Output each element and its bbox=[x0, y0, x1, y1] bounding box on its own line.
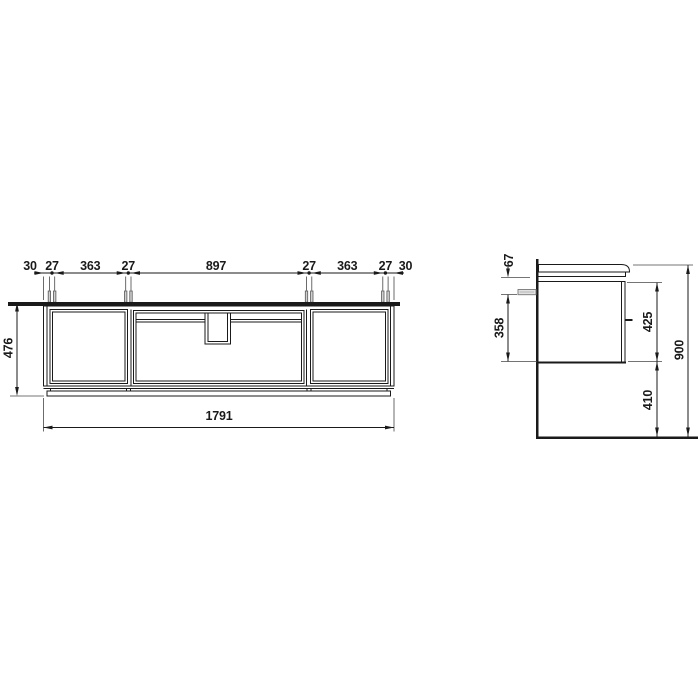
anchor-mark bbox=[311, 291, 313, 302]
front-view: 30 27 363 27 897 27 363 27 30 bbox=[2, 259, 413, 432]
dim-label-897: 897 bbox=[206, 259, 227, 273]
anchor-mark bbox=[382, 291, 384, 302]
side-dimension-358: 358 bbox=[493, 295, 538, 362]
front-top-dimension-chain: 30 27 363 27 897 27 363 27 30 bbox=[23, 259, 412, 300]
dim-label-476: 476 bbox=[2, 338, 16, 359]
dim-label-425: 425 bbox=[641, 312, 655, 333]
dim-label-363-left: 363 bbox=[80, 259, 101, 273]
front-width-dimension: 1791 bbox=[44, 398, 395, 432]
left-door-inner bbox=[53, 312, 126, 381]
dim-label-30-right: 30 bbox=[399, 259, 413, 273]
dim-label-363-right: 363 bbox=[337, 259, 358, 273]
side-dimension-410: 410 bbox=[641, 362, 659, 437]
dim-label-67: 67 bbox=[502, 254, 516, 268]
dim-67-arrowhead bbox=[506, 269, 510, 278]
bottom-rail bbox=[47, 391, 391, 396]
anchor-mark bbox=[54, 291, 56, 302]
side-cabinet-body bbox=[537, 282, 633, 363]
dim-label-1791: 1791 bbox=[205, 409, 232, 423]
center-drawer bbox=[134, 311, 305, 384]
side-floor-line bbox=[536, 437, 698, 440]
dim-label-410: 410 bbox=[641, 390, 655, 411]
side-wall-line bbox=[536, 259, 539, 438]
dim-label-358: 358 bbox=[493, 318, 507, 339]
chain-extension-lines bbox=[44, 277, 395, 301]
right-door bbox=[311, 310, 389, 384]
front-cabinet-body bbox=[44, 306, 395, 396]
dim-label-27-b: 27 bbox=[122, 259, 136, 273]
side-fixing-anchor bbox=[518, 290, 536, 295]
technical-drawing-canvas: 30 27 363 27 897 27 363 27 30 bbox=[0, 0, 700, 700]
side-view: 67 358 425 410 900 bbox=[493, 254, 699, 439]
side-countertop-profile bbox=[539, 265, 630, 277]
dim-label-27-d: 27 bbox=[379, 259, 393, 273]
left-door bbox=[50, 310, 128, 384]
front-wall-anchor-marks bbox=[48, 291, 389, 302]
dim-label-900: 900 bbox=[673, 340, 687, 361]
anchor-mark bbox=[305, 291, 307, 302]
front-countertop bbox=[8, 302, 400, 306]
dim-label-27-c: 27 bbox=[302, 259, 316, 273]
anchor-mark bbox=[125, 291, 127, 302]
anchor-mark bbox=[387, 291, 389, 302]
cabinet-bottom-rail bbox=[44, 389, 395, 397]
side-dimension-67: 67 bbox=[501, 254, 530, 278]
anchor-mark bbox=[48, 291, 50, 302]
vanity-dimension-drawing: 30 27 363 27 897 27 363 27 30 bbox=[0, 0, 700, 700]
side-dimension-425: 425 bbox=[627, 283, 662, 362]
anchor-mark bbox=[130, 291, 132, 302]
countertop-lip bbox=[539, 272, 626, 277]
right-door-inner bbox=[313, 312, 386, 381]
dim-label-30-left: 30 bbox=[23, 259, 37, 273]
dim-label-27-a: 27 bbox=[45, 259, 59, 273]
countertop-slab bbox=[539, 265, 630, 273]
drawer-inner bbox=[136, 313, 302, 381]
front-height-dimension: 476 bbox=[2, 303, 45, 397]
cabinet-front-face bbox=[622, 282, 626, 363]
